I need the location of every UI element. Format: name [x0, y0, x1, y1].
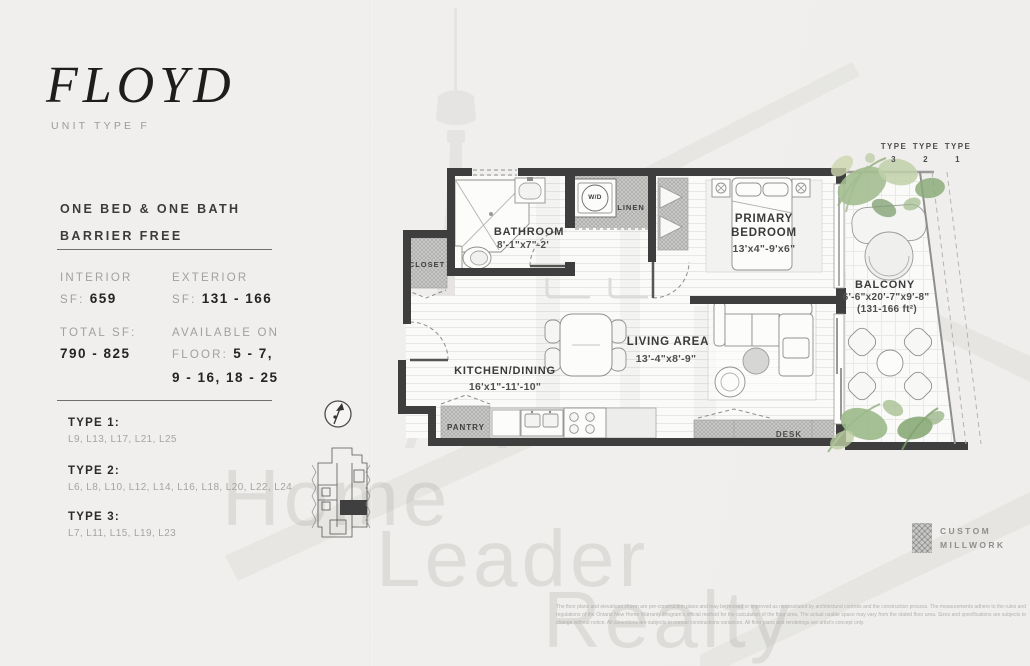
- exterior-sf-value: 131 - 166: [202, 291, 273, 306]
- floor-range1: 5 - 7,: [233, 346, 273, 361]
- exterior-label: EXTERIOR: [172, 272, 248, 284]
- bedroom-dims: 13'x4"-9'x6": [733, 243, 796, 255]
- desk-label: DESK: [776, 430, 802, 439]
- living-area-dims: 13'-4"x8'-9": [636, 353, 697, 365]
- stove: [564, 408, 606, 438]
- disclaimer-text: The floor plans and elevations shown are…: [556, 604, 1026, 627]
- bedroom-label-line2: BEDROOM: [731, 227, 797, 239]
- millwork-swatch: [912, 523, 932, 553]
- balcony-slider: [834, 314, 844, 424]
- unit-summary: ONE BED & ONE BATH BARRIER FREE: [60, 196, 240, 250]
- washer-dryer-label: W/D: [588, 194, 602, 201]
- kitchen-dining-label: KITCHEN/DINING: [454, 365, 556, 377]
- keyplan-unit-highlight: [340, 500, 367, 515]
- floor-line2: 9 - 16, 18 - 25: [172, 370, 279, 385]
- balcony-dims: 6'-6"x20'-7"x9'-8": [843, 292, 930, 303]
- floor-label: FLOOR:: [172, 349, 228, 361]
- exterior-sf-label: SF:: [172, 294, 197, 306]
- exterior-value: SF: 131 - 166: [172, 291, 272, 306]
- coffee-table: [743, 348, 769, 374]
- compass-icon: [325, 401, 351, 427]
- type1-levels: L9, L13, L17, L21, L25: [68, 434, 177, 445]
- living-area-label: LIVING AREA: [627, 336, 710, 348]
- type-marker-3-num: 3: [881, 153, 908, 166]
- type-marker-2-word: TYPE: [913, 140, 940, 153]
- interior-sf-label: SF:: [60, 294, 85, 306]
- type-marker-1-num: 1: [945, 153, 972, 166]
- available-on-label: AVAILABLE ON: [172, 327, 279, 339]
- kitchen-dining-dims: 16'x1"-11'-10": [469, 381, 541, 393]
- total-sf-value: 790 - 825: [60, 346, 131, 361]
- floor-line1: FLOOR: 5 - 7,: [172, 346, 273, 361]
- bathroom-dims: 8'-1"x7"-2': [497, 240, 549, 251]
- type-marker-3-word: TYPE: [881, 140, 908, 153]
- type2-label: TYPE 2:: [68, 465, 120, 477]
- summary-line1: ONE BED & ONE BATH: [60, 196, 240, 223]
- type-marker-1-word: TYPE: [945, 140, 972, 153]
- summary-line2: BARRIER FREE: [60, 223, 240, 250]
- type3-label: TYPE 3:: [68, 511, 120, 523]
- type-marker-2: TYPE 2: [913, 140, 940, 166]
- divider-top: [57, 249, 272, 250]
- interior-sf-value: 659: [90, 291, 117, 306]
- balcony-label: BALCONY: [855, 279, 915, 291]
- total-sf-label: TOTAL SF:: [60, 327, 136, 339]
- bedroom-label-line1: PRIMARY: [735, 213, 793, 225]
- accent-chair: [715, 367, 745, 397]
- type-marker-3: TYPE 3: [881, 140, 908, 166]
- interior-value: SF: 659: [60, 291, 117, 306]
- type-marker-2-num: 2: [913, 153, 940, 166]
- balcony-area: (131-166 ft²): [857, 304, 917, 315]
- page-crease: [370, 0, 372, 666]
- type-marker-1: TYPE 1: [945, 140, 972, 166]
- bathroom-label: BATHROOM: [494, 226, 564, 238]
- legend-line1: CUSTOM: [940, 526, 991, 536]
- closet-label: CLOSET: [409, 260, 445, 269]
- legend-line2: MILLWORK: [940, 540, 1005, 550]
- floorplan-page: Home Leader Realty: [0, 0, 1030, 666]
- type1-label: TYPE 1:: [68, 417, 120, 429]
- divider-bottom: [57, 400, 272, 401]
- type2-levels: L6, L8, L10, L12, L14, L16, L18, L20, L2…: [68, 482, 292, 493]
- type3-levels: L7, L11, L15, L19, L23: [68, 528, 176, 539]
- page-title: FLOYD: [46, 56, 236, 115]
- dining-chair: [545, 320, 561, 343]
- patio-table: [877, 350, 903, 376]
- interior-label: INTERIOR: [60, 272, 133, 284]
- pantry-label: PANTRY: [447, 423, 485, 432]
- linen-label: LINEN: [617, 203, 645, 212]
- unit-type-subtitle: UNIT TYPE F: [51, 120, 150, 132]
